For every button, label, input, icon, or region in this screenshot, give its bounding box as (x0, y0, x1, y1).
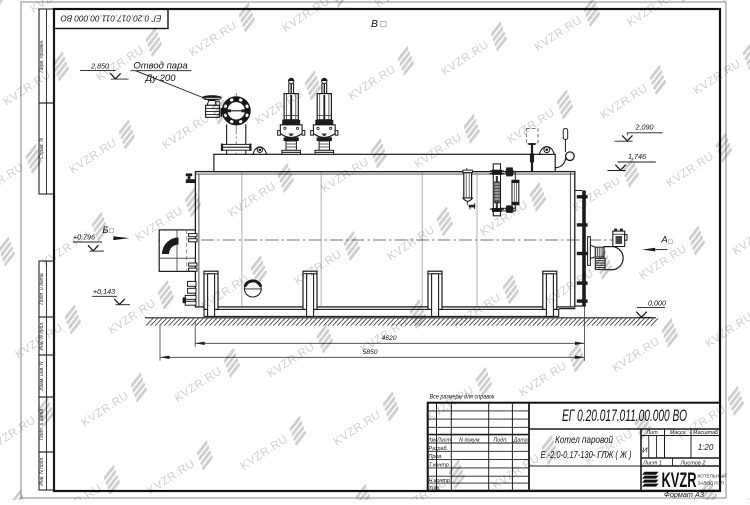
svg-text:Разраб.: Разраб. (429, 446, 449, 452)
svg-text:Инв. N подл.: Инв. N подл. (39, 456, 45, 485)
svg-text:А: А (660, 234, 667, 245)
svg-text:Подп.: Подп. (493, 437, 507, 443)
svg-text:Формат А3: Формат А3 (664, 490, 704, 499)
svg-text:N докум.: N докум. (459, 437, 481, 443)
svg-text:Справ. N: Справ. N (39, 138, 45, 159)
svg-text:Листов 2: Листов 2 (679, 460, 706, 466)
svg-text:Лист: Лист (436, 437, 451, 443)
svg-text:+0,143: +0,143 (93, 287, 115, 296)
svg-text:Изм: Изм (427, 437, 437, 443)
svg-text:КОТЕЛЬНЫЙ: КОТЕЛЬНЫЙ (698, 472, 728, 479)
svg-text:ЕГ 0.20.017.011.00.000 ВО: ЕГ 0.20.017.011.00.000 ВО (60, 14, 161, 24)
svg-text:Лист 1: Лист 1 (642, 460, 662, 466)
svg-text:Ду 200: Ду 200 (144, 73, 176, 84)
svg-text:ЕГ 0.20.017.011.00.000 ВО: ЕГ 0.20.017.011.00.000 ВО (562, 407, 687, 425)
svg-text:1:20: 1:20 (698, 443, 714, 452)
svg-text:В: В (371, 18, 378, 30)
svg-text:Дата: Дата (513, 437, 528, 443)
svg-text:Т.контр.: Т.контр. (429, 462, 451, 468)
svg-text:Взам. инв. N: Взам. инв. N (39, 361, 45, 391)
svg-text:2,090: 2,090 (635, 123, 654, 132)
svg-text:KVZR: KVZR (662, 469, 697, 492)
svg-text:Пров.: Пров. (429, 454, 443, 460)
svg-text:Перв. примен.: Перв. примен. (39, 39, 45, 72)
svg-text:Отвод пара: Отвод пара (133, 61, 187, 72)
svg-text:И: И (642, 446, 648, 455)
svg-text:Подп. и дата: Подп. и дата (39, 273, 45, 305)
svg-text:0,000: 0,000 (648, 298, 666, 307)
